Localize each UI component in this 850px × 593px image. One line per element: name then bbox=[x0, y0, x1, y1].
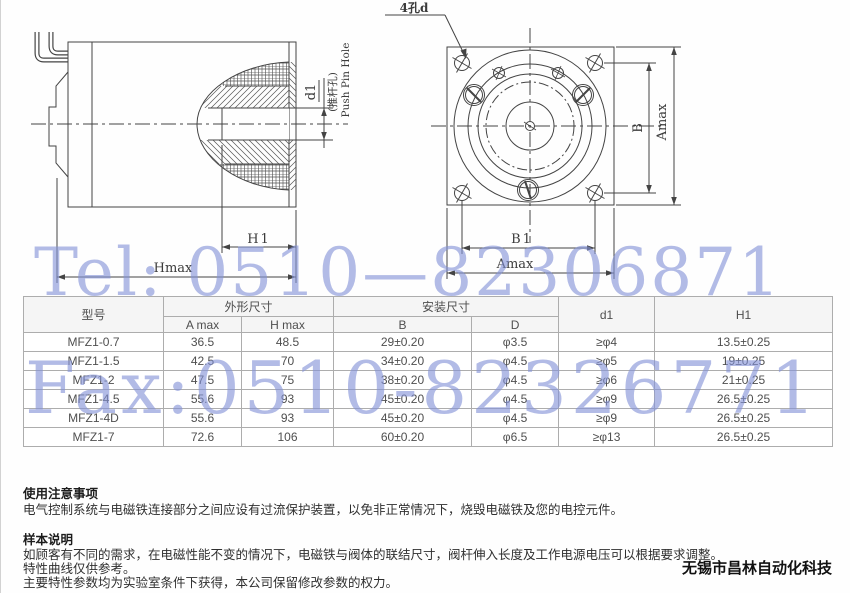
value-cell: 26.5±0.25 bbox=[655, 390, 833, 409]
value-cell: 21±0.25 bbox=[655, 371, 833, 390]
value-cell: 13.5±0.25 bbox=[655, 333, 833, 352]
front-view-drawing: 4孔d B Amax B1 Amax bbox=[385, 1, 681, 279]
value-cell: 70 bbox=[242, 352, 334, 371]
value-cell: 19±0.25 bbox=[655, 352, 833, 371]
value-cell: 48.5 bbox=[242, 333, 334, 352]
holes-count-label: 4孔d bbox=[400, 1, 429, 15]
model-cell: MFZ1-0.7 bbox=[24, 333, 164, 352]
amax-vertical-label: Amax bbox=[655, 103, 670, 141]
value-cell: 38±0.20 bbox=[334, 371, 472, 390]
col-header-b: B bbox=[334, 317, 472, 333]
value-cell: 45±0.20 bbox=[334, 390, 472, 409]
b-dim-label: B bbox=[631, 123, 646, 133]
model-cell: MFZ1-4D bbox=[24, 409, 164, 428]
table-row: MFZ1-1.542.57034±0.20φ4.5≥φ519±0.25 bbox=[24, 352, 833, 371]
table-row: MFZ1-247.57538±0.20φ4.5≥φ621±0.25 bbox=[24, 371, 833, 390]
model-cell: MFZ1-1.5 bbox=[24, 352, 164, 371]
value-cell: 106 bbox=[242, 428, 334, 447]
value-cell: ≥φ4 bbox=[559, 333, 655, 352]
d1-dimension bbox=[319, 78, 327, 148]
value-cell: 93 bbox=[242, 409, 334, 428]
value-cell: 42.5 bbox=[164, 352, 242, 371]
value-cell: φ6.5 bbox=[472, 428, 559, 447]
technical-drawings: d1 (推杆孔) Push Pin Hole H1 Hmax bbox=[1, 0, 850, 294]
datasheet-page: d1 (推杆孔) Push Pin Hole H1 Hmax bbox=[0, 0, 850, 593]
spec-table-body: MFZ1-0.736.548.529±0.20φ3.5≥φ413.5±0.25M… bbox=[24, 333, 833, 447]
col-header-d1: d1 bbox=[559, 297, 655, 333]
value-cell: 55.6 bbox=[164, 409, 242, 428]
value-cell: 75 bbox=[242, 371, 334, 390]
value-cell: 45±0.20 bbox=[334, 409, 472, 428]
side-view-drawing: d1 (推杆孔) Push Pin Hole H1 Hmax bbox=[31, 32, 352, 283]
value-cell: ≥φ6 bbox=[559, 371, 655, 390]
d1-label: d1 bbox=[304, 84, 319, 101]
company-name: 无锡市昌林自动化科技 bbox=[682, 557, 832, 578]
value-cell: ≥φ9 bbox=[559, 409, 655, 428]
value-cell: 34±0.20 bbox=[334, 352, 472, 371]
col-header-h1: H1 bbox=[655, 297, 833, 333]
spec-table: 型号 外形尺寸 安装尺寸 d1 H1 A max H max B D MFZ1-… bbox=[23, 296, 833, 447]
col-header-d: D bbox=[472, 317, 559, 333]
col-header-model: 型号 bbox=[24, 297, 164, 333]
table-row: MFZ1-0.736.548.529±0.20φ3.5≥φ413.5±0.25 bbox=[24, 333, 833, 352]
value-cell: φ4.5 bbox=[472, 390, 559, 409]
wire-leads bbox=[37, 32, 68, 60]
hmax-dim-label: Hmax bbox=[154, 261, 193, 276]
amax-horizontal-label: Amax bbox=[496, 257, 534, 272]
value-cell: 29±0.20 bbox=[334, 333, 472, 352]
value-cell: φ4.5 bbox=[472, 409, 559, 428]
pin-hole-cn-label: (推杆孔) bbox=[326, 72, 339, 112]
h1-dim-label: H1 bbox=[247, 232, 271, 247]
holes-callout bbox=[385, 15, 467, 59]
model-cell: MFZ1-4.5 bbox=[24, 390, 164, 409]
table-row: MFZ1-772.610660±0.20φ6.5≥φ1326.5±0.25 bbox=[24, 428, 833, 447]
value-cell: ≥φ5 bbox=[559, 352, 655, 371]
value-cell: 36.5 bbox=[164, 333, 242, 352]
b-dimension bbox=[604, 63, 656, 193]
value-cell: 72.6 bbox=[164, 428, 242, 447]
value-cell: 47.5 bbox=[164, 371, 242, 390]
value-cell: 93 bbox=[242, 390, 334, 409]
pin-hole-en-label: Push Pin Hole bbox=[340, 43, 352, 118]
value-cell: 26.5±0.25 bbox=[655, 428, 833, 447]
col-header-h-max: H max bbox=[242, 317, 334, 333]
spec-table-header: 型号 外形尺寸 安装尺寸 d1 H1 A max H max B D bbox=[24, 297, 833, 333]
value-cell: 26.5±0.25 bbox=[655, 409, 833, 428]
value-cell: ≥φ13 bbox=[559, 428, 655, 447]
value-cell: φ3.5 bbox=[472, 333, 559, 352]
value-cell: φ4.5 bbox=[472, 352, 559, 371]
col-header-mount-dims: 安装尺寸 bbox=[334, 297, 559, 317]
model-cell: MFZ1-2 bbox=[24, 371, 164, 390]
value-cell: ≥φ9 bbox=[559, 390, 655, 409]
col-header-a-max: A max bbox=[164, 317, 242, 333]
model-cell: MFZ1-7 bbox=[24, 428, 164, 447]
value-cell: 60±0.20 bbox=[334, 428, 472, 447]
table-row: MFZ1-4D55.69345±0.20φ4.5≥φ926.5±0.25 bbox=[24, 409, 833, 428]
b1-dim-label: B1 bbox=[511, 232, 533, 247]
sample-notes-line3: 主要特性参数均为实验室条件下获得，本公司保留修改参数的权力。 bbox=[23, 572, 398, 591]
table-row: MFZ1-4.555.69345±0.20φ4.5≥φ926.5±0.25 bbox=[24, 390, 833, 409]
value-cell: φ4.5 bbox=[472, 371, 559, 390]
usage-notes-body: 电气控制系统与电磁铁连接部分之间应设有过流保护装置，以免非正常情况下，烧毁电磁铁… bbox=[23, 499, 623, 518]
col-header-outline-dims: 外形尺寸 bbox=[164, 297, 334, 317]
value-cell: 55.6 bbox=[164, 390, 242, 409]
